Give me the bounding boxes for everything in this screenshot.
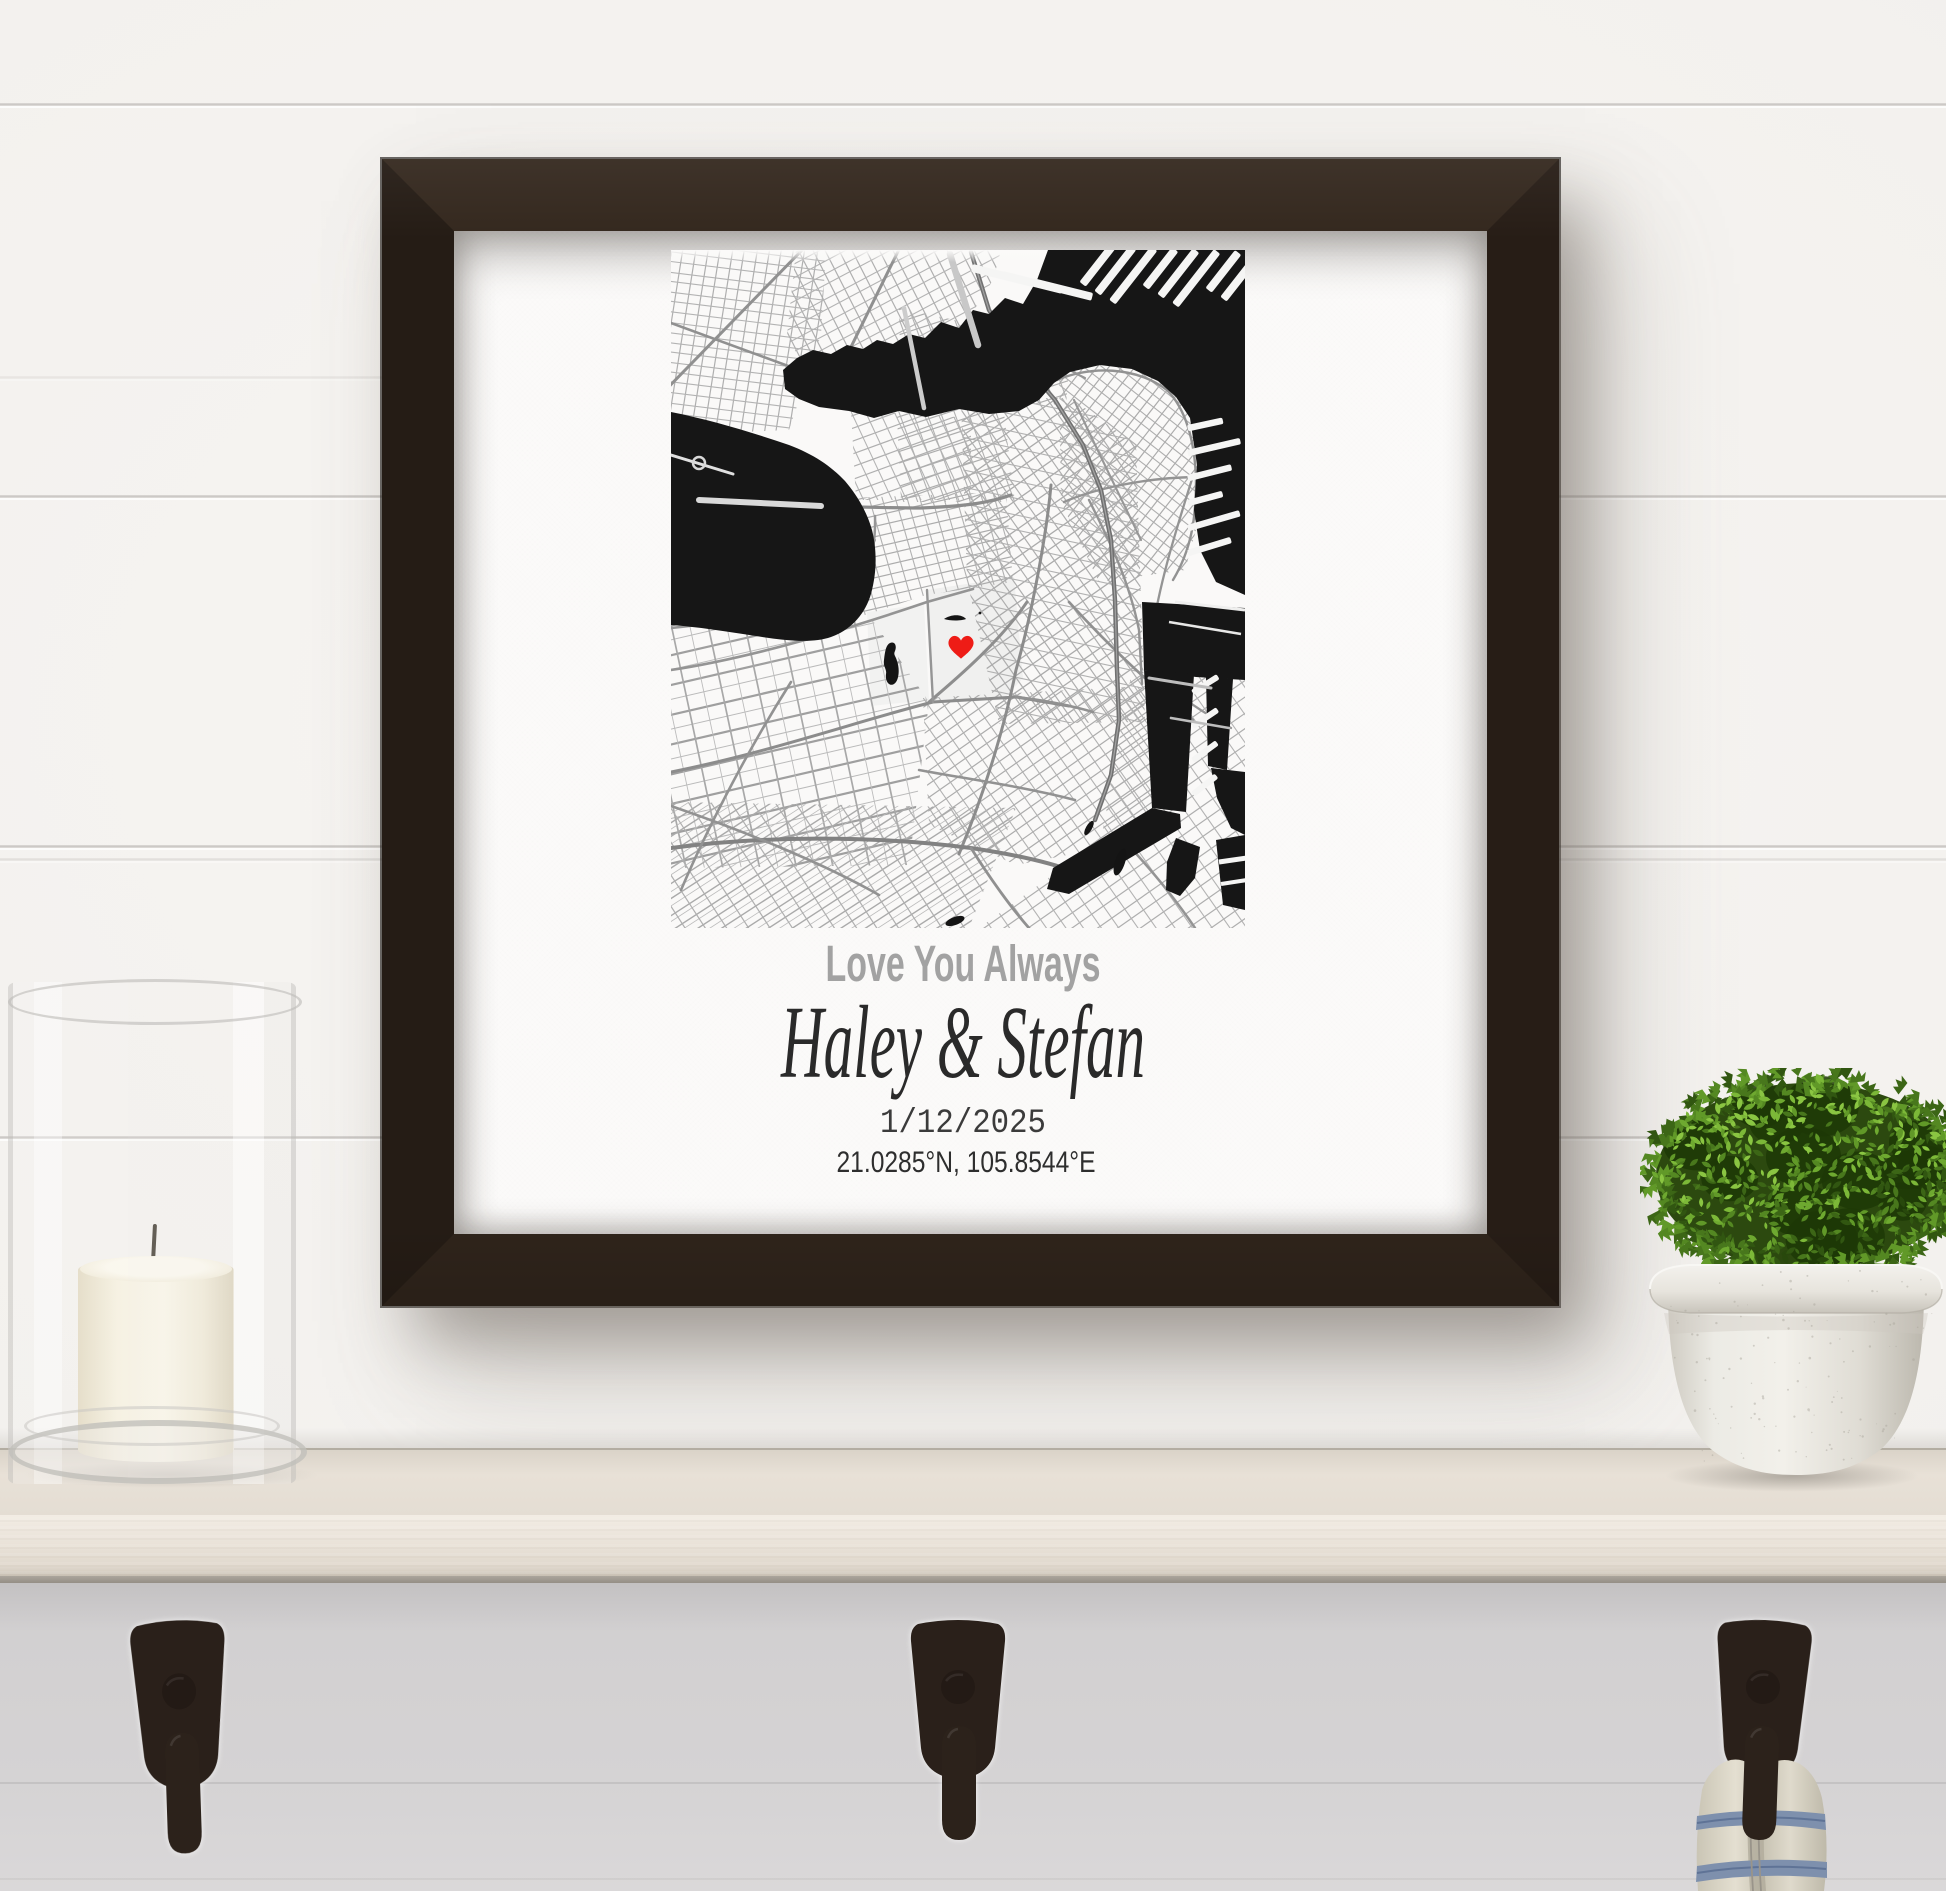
svg-text:Love You Always: Love You Always [826,935,1101,992]
svg-text:Haley & Stefan: Haley & Stefan [780,985,1145,1100]
svg-text:21.0285°N, 105.8544°E: 21.0285°N, 105.8544°E [837,1146,1096,1179]
svg-text:1/12/2025: 1/12/2025 [880,1105,1046,1143]
